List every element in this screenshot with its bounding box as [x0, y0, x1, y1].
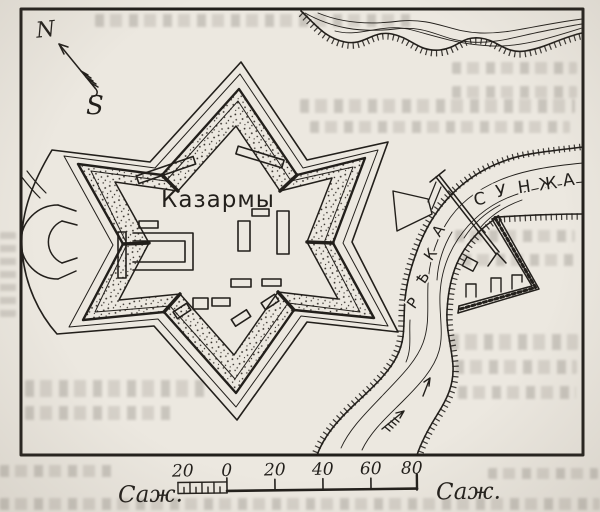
scale-tick-label: 20 [263, 460, 286, 480]
river-letter: Н [516, 177, 531, 199]
star-fortress [21, 62, 441, 420]
scale-unit-label-left: Саж. [118, 481, 183, 508]
scale-tick-label: 0 [221, 461, 232, 481]
river-letter: С [472, 189, 487, 211]
scale-subdivided-block [178, 482, 227, 494]
river-name-horizontal: С У Н Ж А [472, 170, 576, 211]
west-lunette-outwork [21, 205, 77, 279]
river-letter: Ж [538, 173, 559, 195]
building [193, 298, 208, 309]
building [212, 298, 230, 306]
building [139, 221, 158, 228]
scale-main-line [227, 489, 417, 491]
scale-tick-label: 60 [360, 459, 382, 479]
river-name-vertical: Р Ѣ К А [403, 221, 449, 312]
river-letter: А [561, 170, 576, 191]
scanned-map-page: Казармы Р Ѣ К А С У Н Ж А N S [0, 0, 600, 512]
river-flow-arrows [382, 378, 430, 431]
fortress-map-drawing: Казармы Р Ѣ К А С У Н Ж А N S [0, 0, 600, 512]
scale-unit-label-right: Саж. [436, 479, 501, 506]
river-letter: Р [403, 294, 423, 312]
compass-north-label: N [34, 17, 57, 44]
north-arrow-icon [59, 44, 98, 96]
scale-tick-label: 40 [311, 460, 334, 480]
scale-tick-labels: 20 0 20 40 60 80 [171, 458, 423, 481]
river-top-segment [301, 11, 582, 54]
redoubt [458, 216, 539, 313]
barracks-label: Казармы [161, 187, 275, 213]
fort-glacis-outline [22, 62, 398, 420]
building [231, 310, 250, 327]
river-current-lines [305, 13, 582, 46]
compass-south-label: S [86, 91, 104, 121]
scale-tick-label: 20 [171, 461, 194, 481]
river-letter: К [420, 245, 441, 264]
compass-rose: N S [34, 17, 104, 121]
east-outwork [393, 191, 432, 231]
river-letter: Ѣ [412, 268, 433, 288]
scale-tick-label: 80 [401, 458, 423, 478]
building [262, 279, 281, 286]
building [231, 279, 251, 287]
building [238, 221, 250, 251]
building [277, 211, 289, 254]
scale-bar: 20 0 20 40 60 80 Саж. Саж. [118, 458, 501, 510]
river-letter: У [494, 181, 508, 203]
